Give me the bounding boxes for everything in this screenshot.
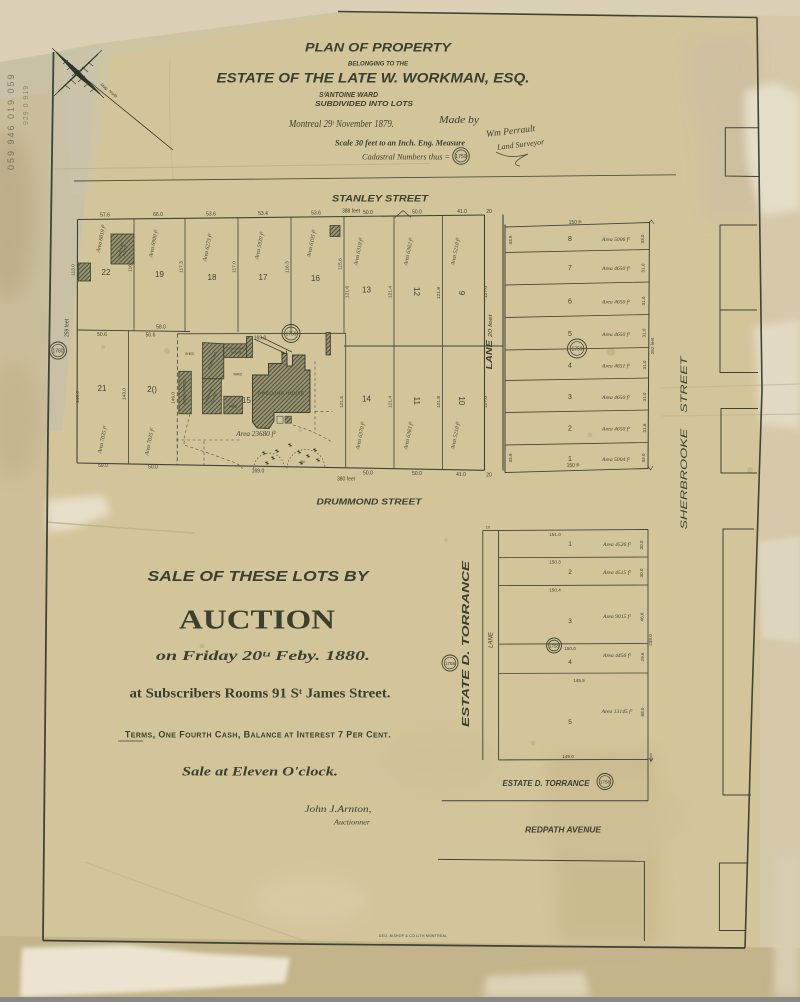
svg-text:1759: 1759 xyxy=(571,347,582,353)
svg-text:5: 5 xyxy=(568,719,572,726)
svg-text:5: 5 xyxy=(568,331,572,338)
svg-text:31.6: 31.6 xyxy=(642,423,647,432)
svg-text:15: 15 xyxy=(242,396,251,405)
svg-text:ESTATE OF THE LATE W. WORKMA: ESTATE OF THE LATE W. WORKMAN, ESQ. xyxy=(217,70,530,86)
svg-text:Montreal 29ᵗ November 1879.: Montreal 29ᵗ November 1879. xyxy=(288,119,394,130)
svg-text:12: 12 xyxy=(412,287,421,296)
svg-text:150.3: 150.3 xyxy=(549,560,561,565)
svg-text:59.0: 59.0 xyxy=(98,463,108,469)
svg-text:121.8: 121.8 xyxy=(436,396,442,408)
svg-text:1: 1 xyxy=(568,541,572,548)
svg-text:at Subscribers Rooms 91 Sᵗ Jam: at Subscribers Rooms 91 Sᵗ James Street. xyxy=(130,686,391,701)
svg-text:Cadastral Numbers thus =: Cadastral Numbers thus = xyxy=(362,153,450,162)
svg-text:4: 4 xyxy=(568,659,572,666)
svg-text:143.0: 143.0 xyxy=(122,388,128,400)
svg-text:53.6: 53.6 xyxy=(311,211,321,217)
svg-text:1758: 1758 xyxy=(600,780,611,785)
svg-text:Area 4650 f²: Area 4650 f² xyxy=(601,331,630,338)
svg-text:169.0: 169.0 xyxy=(252,469,265,475)
svg-text:1759: 1759 xyxy=(285,332,296,338)
svg-text:50.0: 50.0 xyxy=(363,470,373,476)
svg-text:1: 1 xyxy=(568,456,572,463)
svg-text:113.0: 113.0 xyxy=(71,264,77,276)
svg-text:ESTATE D. TORRANCE: ESTATE D. TORRANCE xyxy=(503,779,591,788)
svg-text:121.6: 121.6 xyxy=(345,286,351,298)
svg-text:ESTATE D. TORRANCE: ESTATE D. TORRANCE xyxy=(461,561,472,727)
svg-text:17: 17 xyxy=(259,273,268,282)
svg-text:DRUMMOND STREET: DRUMMOND STREET xyxy=(317,497,423,507)
svg-text:1758: 1758 xyxy=(445,661,456,666)
svg-text:19: 19 xyxy=(155,270,164,279)
svg-text:117.0: 117.0 xyxy=(232,261,238,273)
svg-text:Area 4650 f²: Area 4650 f² xyxy=(601,299,630,306)
svg-text:18: 18 xyxy=(208,273,217,282)
svg-text:121.8: 121.8 xyxy=(436,287,442,299)
svg-text:REDPATH AVENUE: REDPATH AVENUE xyxy=(525,825,601,835)
svg-text:14: 14 xyxy=(362,395,371,404)
svg-text:Sale at Eleven O'clock.: Sale at Eleven O'clock. xyxy=(182,765,338,779)
svg-text:50.0: 50.0 xyxy=(412,471,422,477)
svg-text:33.9: 33.9 xyxy=(508,235,513,244)
svg-text:Area 13145 f²: Area 13145 f² xyxy=(601,708,633,715)
svg-text:30: 30 xyxy=(301,460,305,464)
svg-text:SⁱANTOINE WARD: SⁱANTOINE WARD xyxy=(319,91,378,99)
svg-text:146.0: 146.0 xyxy=(171,392,177,404)
svg-text:31.0: 31.0 xyxy=(642,328,647,337)
svg-text:121.4: 121.4 xyxy=(388,396,394,408)
svg-text:1758: 1758 xyxy=(549,644,559,649)
svg-text:13: 13 xyxy=(362,286,371,295)
svg-text:Area 9015 f²: Area 9015 f² xyxy=(602,613,631,620)
svg-text:YARD: YARD xyxy=(233,373,243,377)
svg-text:Area 4650 f²: Area 4650 f² xyxy=(601,265,630,272)
svg-text:GEO. BISHOP & CO LITH MONTREAL: GEO. BISHOP & CO LITH MONTREAL xyxy=(379,934,447,938)
svg-text:on Friday 20ᵗʴ Feby. 1880.: on Friday 20ᵗʴ Feby. 1880. xyxy=(156,648,370,663)
svg-text:41.0: 41.0 xyxy=(456,472,466,478)
svg-text:7: 7 xyxy=(568,265,572,272)
svg-text:88.0: 88.0 xyxy=(640,707,645,716)
svg-text:10: 10 xyxy=(457,396,466,405)
svg-text:115.6: 115.6 xyxy=(338,258,344,270)
svg-text:6: 6 xyxy=(568,299,572,306)
svg-text:127.0: 127.0 xyxy=(483,396,489,408)
svg-text:53.6: 53.6 xyxy=(206,212,216,218)
svg-text:30.0: 30.0 xyxy=(639,568,644,577)
svg-text:10: 10 xyxy=(486,525,491,530)
svg-text:21: 21 xyxy=(98,384,107,393)
svg-text:31.0: 31.0 xyxy=(642,360,647,369)
svg-text:Scale 30 feet to an Inch. Eng: Scale 30 feet to an Inch. Eng. Measure xyxy=(335,138,465,148)
svg-text:259 feet: 259 feet xyxy=(65,318,71,337)
svg-text:151.0: 151.0 xyxy=(549,532,561,537)
svg-text:Area 4526 f²: Area 4526 f² xyxy=(602,541,631,548)
svg-text:DWELLING HOUSE: DWELLING HOUSE xyxy=(258,391,305,396)
svg-text:Auctionner: Auctionner xyxy=(333,818,370,827)
svg-text:380 feet: 380 feet xyxy=(337,477,356,483)
svg-text:Area 4650 f²: Area 4650 f² xyxy=(601,394,630,401)
svg-text:252 feet: 252 feet xyxy=(650,337,655,354)
svg-text:46.6: 46.6 xyxy=(640,612,645,621)
svg-text:John J.Arnton,: John J.Arnton, xyxy=(305,805,372,815)
svg-text:AUCTION: AUCTION xyxy=(179,605,336,635)
svg-text:SALE OF THESE LOTS BY: SALE OF THESE LOTS BY xyxy=(148,568,371,585)
svg-text:LANE: LANE xyxy=(489,631,495,648)
svg-text:53.4: 53.4 xyxy=(258,211,268,217)
svg-text:150 f²: 150 f² xyxy=(567,463,580,469)
svg-text:STANLEY STREET: STANLEY STREET xyxy=(332,194,429,205)
svg-text:SHED: SHED xyxy=(185,352,195,356)
svg-text:4: 4 xyxy=(568,363,572,370)
svg-text:Area 4456 f²: Area 4456 f² xyxy=(602,652,631,659)
svg-text:3: 3 xyxy=(568,618,572,625)
svg-text:2: 2 xyxy=(568,569,572,576)
svg-text:Area 5006 f²: Area 5006 f² xyxy=(601,236,630,243)
svg-text:SHERBROOKE STREET: SHERBROOKE STREET xyxy=(679,355,690,530)
svg-text:BELONGING TO THE: BELONGING TO THE xyxy=(348,61,409,68)
svg-text:116.3: 116.3 xyxy=(285,261,291,273)
svg-text:66.0: 66.0 xyxy=(153,212,163,218)
svg-text:29.6: 29.6 xyxy=(640,652,645,661)
svg-text:1759: 1759 xyxy=(455,154,467,160)
svg-text:2: 2 xyxy=(568,426,572,433)
svg-text:121.4: 121.4 xyxy=(388,286,394,298)
svg-text:Area 4650 f²: Area 4650 f² xyxy=(601,426,630,433)
svg-text:150.4: 150.4 xyxy=(549,588,561,593)
svg-text:8: 8 xyxy=(568,236,572,243)
svg-text:50.6: 50.6 xyxy=(146,332,156,338)
svg-text:117.3: 117.3 xyxy=(179,261,185,273)
svg-text:33.0: 33.0 xyxy=(640,234,645,243)
svg-text:31.0: 31.0 xyxy=(642,392,647,401)
svg-text:20: 20 xyxy=(486,209,492,215)
svg-text:31.0: 31.0 xyxy=(641,263,646,272)
svg-text:145.5: 145.5 xyxy=(573,678,585,683)
svg-text:31.0: 31.0 xyxy=(641,296,646,305)
svg-text:30.0: 30.0 xyxy=(639,540,644,549)
svg-text:149.0: 149.0 xyxy=(562,754,574,759)
svg-text:57.6: 57.6 xyxy=(100,213,110,219)
svg-text:3: 3 xyxy=(568,394,572,401)
svg-text:Area 4651 f²: Area 4651 f² xyxy=(601,363,630,370)
svg-text:50.0: 50.0 xyxy=(148,465,158,471)
svg-text:50.0: 50.0 xyxy=(412,210,422,216)
svg-text:121.6: 121.6 xyxy=(339,396,345,408)
svg-text:YARD: YARD xyxy=(228,405,237,409)
svg-text:16: 16 xyxy=(311,274,320,283)
svg-text:Area 4515 f²: Area 4515 f² xyxy=(602,569,631,576)
svg-text:2(): 2() xyxy=(147,385,157,394)
svg-text:150.0: 150.0 xyxy=(564,646,576,651)
svg-text:41.0: 41.0 xyxy=(457,209,467,215)
svg-text:50.0: 50.0 xyxy=(363,210,373,216)
svg-text:238.0: 238.0 xyxy=(648,634,653,646)
svg-text:PLAN OF PROPERTY: PLAN OF PROPERTY xyxy=(305,41,452,55)
svg-text:HOUSE: HOUSE xyxy=(231,351,242,355)
svg-text:Made by: Made by xyxy=(438,115,480,126)
svg-text:22: 22 xyxy=(102,268,111,277)
svg-text:33.0: 33.0 xyxy=(641,453,646,462)
svg-text:20: 20 xyxy=(486,473,492,479)
svg-text:Area 5004 f²: Area 5004 f² xyxy=(601,456,630,463)
svg-text:SUBDIVIDED INTO LOTS: SUBDIVIDED INTO LOTS xyxy=(315,99,413,108)
svg-text:140.0: 140.0 xyxy=(75,391,81,403)
svg-text:150 f²: 150 f² xyxy=(569,220,582,226)
svg-text:58.0: 58.0 xyxy=(156,325,166,331)
svg-text:11: 11 xyxy=(412,397,421,406)
svg-text:Area 23680 f²: Area 23680 f² xyxy=(235,430,276,438)
svg-text:929 0 919: 929 0 919 xyxy=(23,85,30,125)
svg-text:50.6: 50.6 xyxy=(97,332,107,338)
svg-text:9: 9 xyxy=(457,291,466,296)
svg-text:388 feet: 388 feet xyxy=(342,209,361,215)
svg-text:059 946 019 059: 059 946 019 059 xyxy=(6,72,16,170)
svg-text:GREEN HOUSE: GREEN HOUSE xyxy=(183,379,187,405)
svg-text:127.0: 127.0 xyxy=(483,286,489,298)
svg-text:1760: 1760 xyxy=(52,349,63,355)
svg-text:33.9: 33.9 xyxy=(508,453,513,462)
